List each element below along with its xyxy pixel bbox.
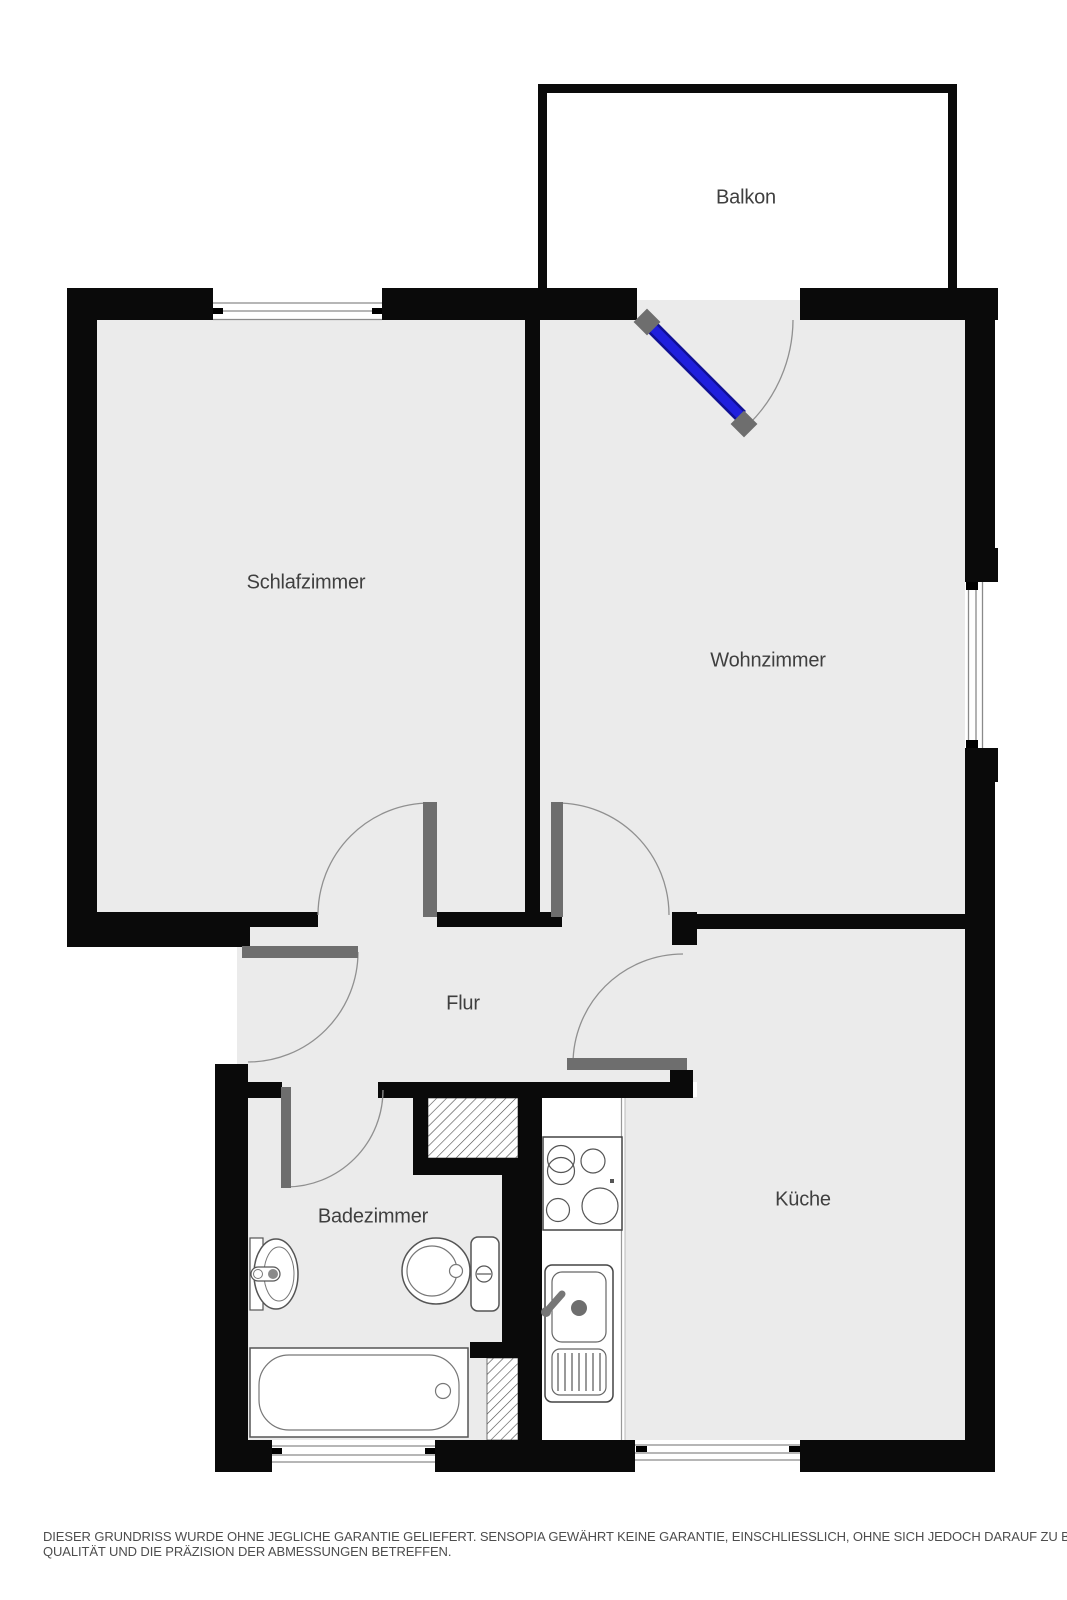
wohnzimmer-window [965, 582, 983, 748]
stove-icon [543, 1137, 622, 1230]
wohnzimmer-floor [538, 320, 965, 914]
bathtub-icon [250, 1348, 468, 1437]
badezimmer-label: Badezimmer [318, 1206, 428, 1229]
kitchen-sink-icon [541, 1265, 613, 1402]
shaft-hatch-top [428, 1098, 518, 1158]
washbasin-icon [250, 1238, 298, 1310]
disclaimer-line-1: DIESER GRUNDRISS WURDE OHNE JEGLICHE GAR… [43, 1530, 1043, 1545]
badezimmer-window [272, 1440, 435, 1472]
disclaimer-line-2: QUALITÄT UND DIE PRÄZISION DER ABMESSUNG… [43, 1545, 1043, 1560]
balcony-wall-right [948, 84, 957, 300]
balkon-label: Balkon [716, 187, 776, 210]
kueche-label: Küche [775, 1189, 831, 1212]
balcony-wall-top [538, 84, 957, 93]
balcony-wall-left [538, 84, 547, 300]
flur-label: Flur [446, 993, 480, 1016]
schlafzimmer-label: Schlafzimmer [247, 572, 366, 595]
schlafzimmer-floor [97, 320, 525, 912]
kueche-window [635, 1440, 800, 1472]
wohnzimmer-label: Wohnzimmer [710, 650, 825, 673]
disclaimer: DIESER GRUNDRISS WURDE OHNE JEGLICHE GAR… [43, 1530, 1043, 1559]
floor-plan-canvas: Balkon Schlafzimmer Wohnzimmer Flur Bade… [0, 0, 1067, 1600]
floor-plan-drawing [0, 0, 1067, 1600]
kueche-floor [625, 1097, 965, 1440]
shaft-hatch-bottom [487, 1358, 518, 1440]
schlafzimmer-window [213, 288, 382, 320]
